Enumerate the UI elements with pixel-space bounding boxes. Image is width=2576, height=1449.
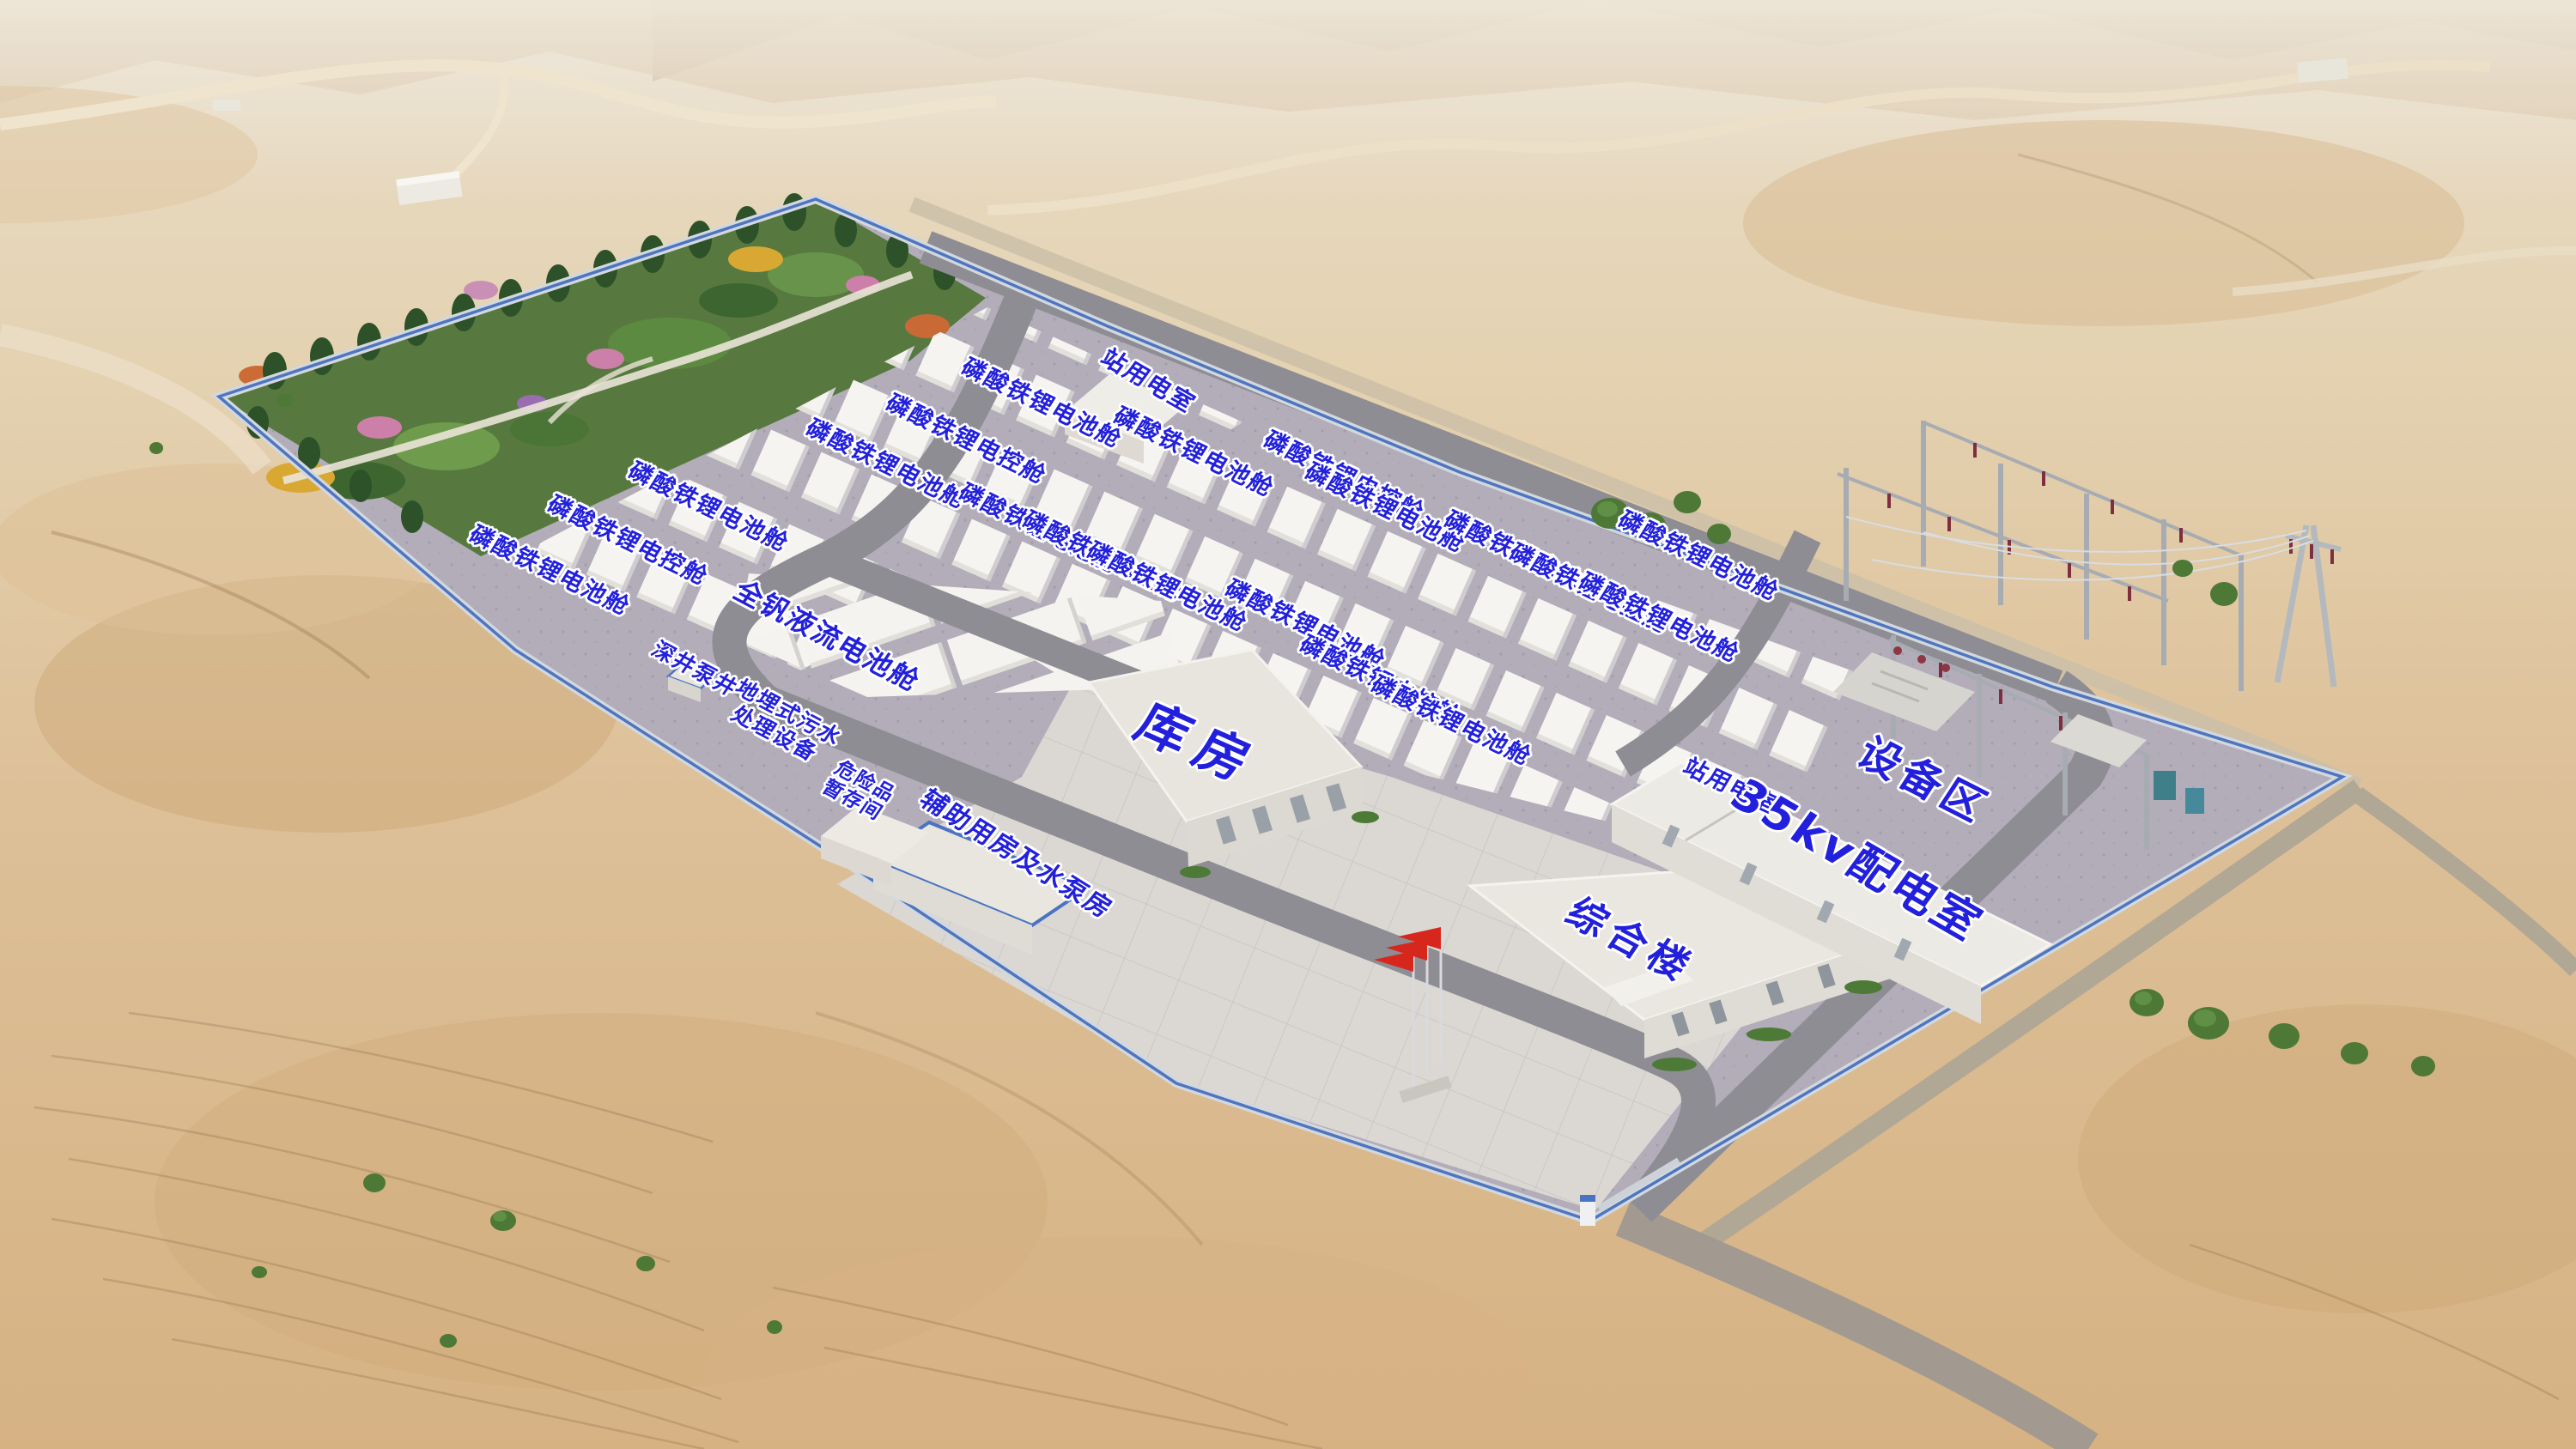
aerial-site-rendering: 磷酸铁锂电池舱 站用电室 磷酸铁锂电控舱 磷酸铁锂电池舱 磷酸铁锂电池舱 磷酸铁… — [0, 0, 2576, 1449]
terrain-and-site-graphics — [0, 0, 2576, 1449]
